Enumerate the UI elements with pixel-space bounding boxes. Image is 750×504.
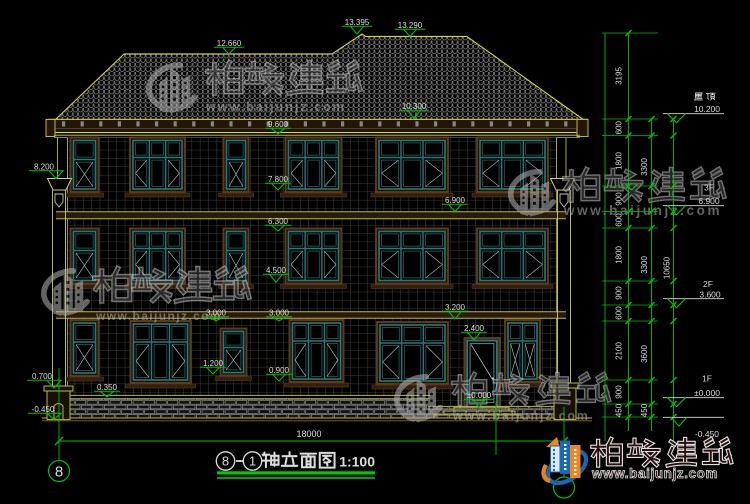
svg-text:1800: 1800 — [615, 152, 624, 170]
svg-text:7.800: 7.800 — [268, 175, 289, 184]
svg-text:3.000: 3.000 — [269, 308, 290, 317]
svg-text:0.700: 0.700 — [32, 372, 53, 381]
svg-text:10650: 10650 — [663, 256, 672, 279]
svg-text:www.baijunjz.com: www.baijunjz.com — [205, 100, 346, 114]
svg-text:www.baijunjz.com: www.baijunjz.com — [591, 466, 718, 481]
svg-text:6.900: 6.900 — [445, 196, 466, 205]
svg-text:±0.000: ±0.000 — [467, 391, 492, 400]
svg-text:0.350: 0.350 — [97, 383, 118, 392]
svg-text:10.300: 10.300 — [402, 102, 427, 111]
svg-text:1: 1 — [249, 454, 256, 469]
svg-text:600: 600 — [615, 120, 624, 134]
svg-text:8: 8 — [222, 454, 229, 469]
svg-text:900: 900 — [615, 385, 624, 399]
svg-text:8: 8 — [55, 464, 63, 481]
svg-text:4.500: 4.500 — [266, 266, 287, 275]
svg-text:3.000: 3.000 — [206, 308, 227, 317]
svg-text:www.baijunjz.com: www.baijunjz.com — [95, 309, 222, 323]
svg-text:900: 900 — [615, 286, 624, 300]
svg-text:2.400: 2.400 — [464, 324, 485, 333]
svg-text:10.200: 10.200 — [694, 104, 720, 114]
svg-text:1:100: 1:100 — [339, 454, 375, 470]
svg-text:3F: 3F — [704, 183, 714, 193]
svg-text:9.600: 9.600 — [268, 120, 289, 129]
svg-text:3300: 3300 — [640, 256, 649, 274]
svg-text:±0.000: ±0.000 — [694, 388, 720, 398]
svg-text:13.395: 13.395 — [345, 18, 370, 27]
svg-text:900: 900 — [615, 192, 624, 206]
svg-text:1F: 1F — [702, 374, 712, 384]
svg-text:13.290: 13.290 — [398, 21, 423, 30]
svg-text:3.600: 3.600 — [699, 290, 721, 300]
svg-text:600: 600 — [615, 306, 624, 320]
svg-text:3195: 3195 — [615, 67, 624, 85]
svg-text:8.200: 8.200 — [34, 162, 55, 171]
svg-text:18000: 18000 — [296, 429, 321, 439]
svg-text:2100: 2100 — [615, 342, 624, 360]
svg-text:6.300: 6.300 — [268, 217, 289, 226]
svg-text:12.660: 12.660 — [217, 39, 242, 48]
svg-text:3300: 3300 — [640, 158, 649, 176]
svg-text:6.900: 6.900 — [698, 196, 720, 206]
svg-text:2F: 2F — [703, 279, 713, 289]
svg-text:-0.450: -0.450 — [695, 429, 719, 439]
svg-text:1800: 1800 — [615, 246, 624, 264]
svg-text:450: 450 — [615, 403, 624, 417]
svg-text:0.900: 0.900 — [269, 366, 290, 375]
svg-text:1.200: 1.200 — [203, 359, 224, 368]
svg-text:3.200: 3.200 — [445, 303, 466, 312]
svg-text:-0.450: -0.450 — [32, 405, 55, 414]
svg-text:600: 600 — [615, 213, 624, 227]
svg-text:www.baijunjz.com: www.baijunjz.com — [452, 409, 590, 423]
svg-text:450: 450 — [640, 403, 649, 417]
svg-text:3600: 3600 — [640, 345, 649, 363]
